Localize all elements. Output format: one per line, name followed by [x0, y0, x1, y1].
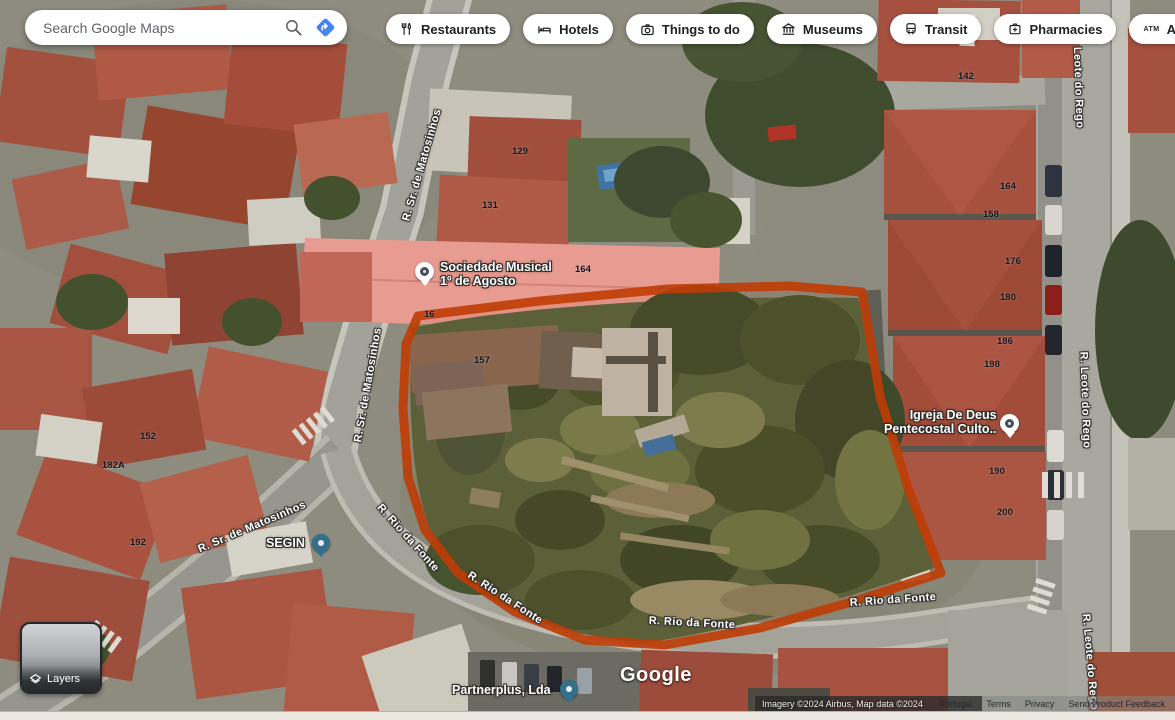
- google-maps-app: R. Sr. de Matosinhos R. Sr. de Matosinho…: [0, 0, 1175, 720]
- chip-label: Restaurants: [421, 22, 496, 37]
- search-bar: [25, 10, 347, 45]
- chip-hotels[interactable]: Hotels: [523, 14, 613, 44]
- poi-name-line2: 1º de Agosto: [440, 274, 552, 288]
- poi-name-line2: Pentecostal Culto..: [884, 422, 997, 436]
- poi-label-partnerplus[interactable]: Partnerplus, Lda: [452, 683, 551, 697]
- poi-pin-dot-icon: [1005, 419, 1014, 428]
- layers-label: Layers: [47, 673, 80, 685]
- chip-label: Museums: [803, 22, 863, 37]
- poi-label-segin[interactable]: SEGIN: [266, 536, 305, 550]
- chip-restaurants[interactable]: Restaurants: [386, 14, 510, 44]
- attribution-link-terms[interactable]: Terms: [986, 699, 1011, 709]
- attribution-link-privacy[interactable]: Privacy: [1025, 699, 1055, 709]
- scan-paper-edge: [0, 711, 1175, 720]
- chip-pharmacies[interactable]: Pharmacies: [994, 14, 1116, 44]
- poi-pin-sociedade-musical[interactable]: [415, 262, 434, 281]
- search-input[interactable]: [41, 19, 281, 37]
- layers-button[interactable]: Layers: [20, 622, 102, 694]
- poi-name-line1: Partnerplus, Lda: [452, 683, 551, 697]
- chip-label: Pharmacies: [1029, 22, 1102, 37]
- poi-pin-dot-icon: [566, 686, 572, 692]
- poi-name-line1: Sociedade Musical: [440, 260, 552, 274]
- poi-pin-dot-icon: [420, 267, 429, 276]
- pharmacy-icon: [1008, 22, 1022, 36]
- search-icon[interactable]: [281, 16, 305, 40]
- poi-name-line1: SEGIN: [266, 536, 305, 550]
- chip-label: Hotels: [559, 22, 599, 37]
- poi-pin-igreja[interactable]: [1000, 414, 1019, 433]
- chip-transit[interactable]: Transit: [890, 14, 982, 44]
- chip-label: ATMs: [1167, 22, 1175, 37]
- chip-atms[interactable]: ATM ATMs: [1129, 14, 1175, 44]
- poi-name-line1: Igreja De Deus: [884, 408, 997, 422]
- poi-label-sociedade-musical[interactable]: Sociedade Musical 1º de Agosto: [440, 260, 552, 289]
- transit-icon: [904, 22, 918, 36]
- attribution-link-portugal[interactable]: Portugal: [939, 699, 973, 709]
- poi-pin-segin[interactable]: [312, 534, 330, 552]
- chip-label: Transit: [925, 22, 968, 37]
- poi-label-igreja[interactable]: Igreja De Deus Pentecostal Culto..: [884, 408, 997, 437]
- chip-label: Things to do: [662, 22, 740, 37]
- museum-icon: [781, 22, 796, 37]
- satellite-imagery: [0, 0, 1175, 720]
- atm-icon: ATM: [1143, 26, 1159, 33]
- attribution-bar: Imagery ©2024 Airbus, Map data ©2024 Por…: [755, 696, 1175, 712]
- poi-pin-partnerplus[interactable]: [560, 680, 578, 698]
- chip-museums[interactable]: Museums: [767, 14, 877, 44]
- attribution-link-feedback[interactable]: Send Product Feedback: [1068, 699, 1165, 709]
- category-chips: Restaurants Hotels Things to do Museums …: [386, 14, 1175, 44]
- poi-pin-dot-icon: [318, 540, 324, 546]
- property-boundary-polygon: [403, 286, 941, 645]
- hotels-icon: [537, 22, 552, 37]
- directions-icon[interactable]: [313, 16, 337, 40]
- attribution-imagery: Imagery ©2024 Airbus, Map data ©2024: [755, 699, 923, 709]
- restaurants-icon: [400, 22, 414, 36]
- camera-icon: [640, 22, 655, 37]
- chip-things-to-do[interactable]: Things to do: [626, 14, 754, 44]
- layers-icon: [29, 673, 42, 686]
